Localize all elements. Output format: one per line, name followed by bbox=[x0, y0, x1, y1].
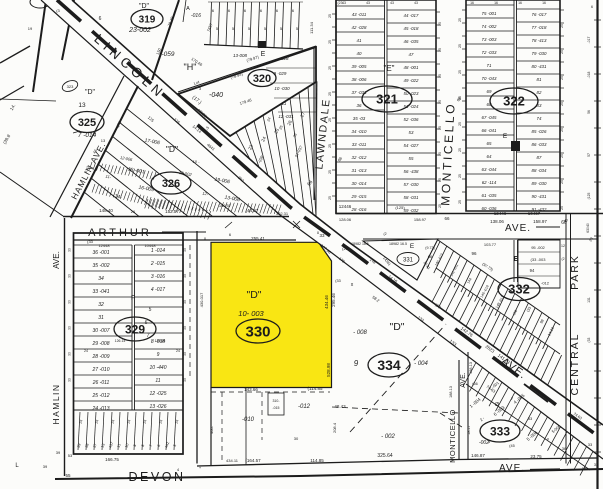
svg-text:64: 64 bbox=[487, 154, 492, 159]
svg-text:33: 33 bbox=[68, 378, 72, 382]
svg-text:30 -014: 30 -014 bbox=[352, 181, 367, 186]
svg-text:66: 66 bbox=[444, 216, 450, 221]
svg-text:9: 9 bbox=[354, 359, 359, 368]
svg-text:43: 43 bbox=[390, 1, 394, 5]
svg-text:434.46: 434.46 bbox=[324, 295, 329, 309]
svg-text:AVE.: AVE. bbox=[52, 251, 61, 269]
svg-text:2 -015: 2 -015 bbox=[150, 261, 165, 267]
svg-text:"E": "E" bbox=[383, 64, 394, 73]
svg-text:25: 25 bbox=[560, 128, 564, 132]
svg-text:85 -026: 85 -026 bbox=[532, 129, 547, 134]
svg-text:329: 329 bbox=[125, 322, 145, 336]
svg-text:F: F bbox=[131, 295, 135, 302]
svg-text:3 -016: 3 -016 bbox=[151, 274, 165, 280]
svg-text:6: 6 bbox=[145, 320, 148, 326]
svg-text:56 -438: 56 -438 bbox=[404, 169, 419, 174]
svg-text:94: 94 bbox=[530, 268, 535, 273]
svg-text:79 -030: 79 -030 bbox=[532, 51, 547, 56]
svg-text:39: 39 bbox=[56, 450, 61, 455]
svg-text:25: 25 bbox=[328, 14, 332, 18]
svg-text:138.06: 138.06 bbox=[490, 219, 504, 224]
svg-text:70 -043: 70 -043 bbox=[482, 76, 497, 81]
svg-text:-017: -017 bbox=[587, 36, 591, 43]
svg-text:38 -006: 38 -006 bbox=[352, 77, 367, 82]
svg-text:30: 30 bbox=[294, 436, 299, 441]
svg-text:A: A bbox=[186, 6, 190, 12]
svg-text:33: 33 bbox=[68, 248, 72, 252]
svg-text:27 -010: 27 -010 bbox=[92, 367, 110, 373]
svg-text:16: 16 bbox=[494, 1, 498, 5]
svg-text:13-008: 13-008 bbox=[233, 53, 248, 58]
svg-text:7 -014: 7 -014 bbox=[78, 132, 97, 139]
svg-text:323: 323 bbox=[67, 84, 74, 89]
svg-text:39 -005: 39 -005 bbox=[352, 64, 367, 69]
svg-text:72 -033: 72 -033 bbox=[482, 50, 497, 55]
svg-text:65: 65 bbox=[487, 141, 492, 146]
svg-text:61 -035: 61 -035 bbox=[482, 193, 497, 198]
svg-text:74: 74 bbox=[537, 116, 542, 121]
svg-text:1 -014: 1 -014 bbox=[151, 248, 165, 254]
svg-text:56: 56 bbox=[587, 110, 591, 114]
svg-text:25: 25 bbox=[458, 174, 462, 178]
svg-text:CENTRAL: CENTRAL bbox=[569, 332, 581, 395]
svg-text:25: 25 bbox=[560, 206, 564, 210]
svg-text:36: 36 bbox=[357, 103, 362, 108]
svg-text:331: 331 bbox=[403, 258, 414, 264]
svg-text:25: 25 bbox=[438, 100, 442, 104]
svg-text:10 -440: 10 -440 bbox=[150, 365, 167, 371]
svg-text:- 008: - 008 bbox=[353, 330, 367, 336]
svg-text:18982 16.5: 18982 16.5 bbox=[351, 242, 369, 246]
svg-text:33: 33 bbox=[68, 300, 72, 304]
svg-text:25: 25 bbox=[560, 24, 564, 28]
svg-text:295.46: 295.46 bbox=[331, 293, 336, 307]
svg-text:E: E bbox=[261, 51, 266, 58]
svg-text:44 -017: 44 -017 bbox=[404, 13, 419, 18]
svg-text:33: 33 bbox=[319, 233, 325, 238]
svg-text:334: 334 bbox=[377, 357, 401, 373]
svg-text:30: 30 bbox=[183, 248, 187, 252]
svg-text:158.97: 158.97 bbox=[414, 217, 427, 222]
svg-text:25: 25 bbox=[458, 18, 462, 22]
svg-text:43: 43 bbox=[366, 1, 370, 5]
svg-text:434.11: 434.11 bbox=[226, 458, 239, 463]
svg-text:78 -413: 78 -413 bbox=[532, 38, 547, 43]
svg-text:(125: (125 bbox=[587, 192, 591, 199]
svg-text:28 -009: 28 -009 bbox=[92, 354, 110, 360]
svg-text:11: 11 bbox=[282, 101, 287, 106]
svg-text:319: 319 bbox=[139, 15, 156, 26]
svg-text:24: 24 bbox=[84, 349, 88, 353]
svg-text:10- 003: 10- 003 bbox=[238, 309, 264, 318]
svg-text:45 -018: 45 -018 bbox=[404, 26, 419, 31]
svg-text:53: 53 bbox=[68, 453, 73, 458]
svg-text:40: 40 bbox=[357, 51, 362, 56]
svg-text:30: 30 bbox=[183, 300, 187, 304]
svg-text:33 -011: 33 -011 bbox=[352, 142, 367, 147]
svg-text:63 -044: 63 -044 bbox=[482, 167, 497, 172]
svg-text:75 -001: 75 -001 bbox=[482, 11, 497, 16]
svg-text:(2: (2 bbox=[383, 232, 386, 236]
svg-text:30: 30 bbox=[183, 352, 187, 356]
svg-text:"D": "D" bbox=[166, 144, 178, 154]
svg-text:62 -114: 62 -114 bbox=[482, 180, 497, 185]
svg-text:5: 5 bbox=[149, 307, 152, 313]
svg-text:-059: -059 bbox=[161, 51, 174, 58]
svg-text:88 -034: 88 -034 bbox=[532, 168, 547, 173]
svg-text:10 -030: 10 -030 bbox=[274, 86, 290, 91]
svg-text:29 -008: 29 -008 bbox=[92, 341, 110, 347]
svg-text:333: 333 bbox=[490, 424, 510, 438]
svg-text:12446: 12446 bbox=[339, 204, 352, 209]
svg-text:82: 82 bbox=[537, 90, 542, 95]
svg-text:(9.73): (9.73) bbox=[425, 246, 434, 250]
svg-text:16: 16 bbox=[470, 1, 474, 5]
svg-text:-040: -040 bbox=[209, 92, 223, 99]
svg-text:18.17: 18.17 bbox=[467, 425, 471, 435]
svg-text:162.57: 162.57 bbox=[219, 203, 232, 208]
svg-text:33: 33 bbox=[68, 326, 72, 330]
svg-text:25: 25 bbox=[560, 180, 564, 184]
svg-text:255.41: 255.41 bbox=[251, 236, 265, 241]
svg-text:"D": "D" bbox=[389, 321, 404, 333]
svg-text:67 -045: 67 -045 bbox=[482, 115, 497, 120]
svg-text:325.64: 325.64 bbox=[377, 453, 393, 459]
svg-text:96: 96 bbox=[471, 251, 477, 256]
svg-text:10448: 10448 bbox=[144, 243, 156, 248]
svg-text:30 -007: 30 -007 bbox=[93, 328, 110, 334]
svg-text:48 -001: 48 -001 bbox=[404, 65, 419, 70]
svg-text:73 -003: 73 -003 bbox=[482, 37, 497, 42]
svg-text:332: 332 bbox=[508, 282, 530, 297]
svg-text:86 -033: 86 -033 bbox=[532, 142, 547, 147]
svg-text:25: 25 bbox=[438, 204, 442, 208]
svg-text:25: 25 bbox=[438, 178, 442, 182]
svg-text:HAMLIN: HAMLIN bbox=[51, 383, 61, 424]
svg-text:46 -035: 46 -035 bbox=[404, 39, 419, 44]
svg-text:310-: 310- bbox=[272, 399, 280, 403]
svg-text:95 -002: 95 -002 bbox=[531, 245, 545, 250]
svg-text:(164.57: (164.57 bbox=[245, 458, 261, 463]
svg-text:"D": "D" bbox=[85, 89, 96, 96]
svg-text:25: 25 bbox=[458, 96, 462, 100]
svg-text:47: 47 bbox=[409, 52, 414, 57]
svg-text:31 -013: 31 -013 bbox=[352, 168, 367, 173]
svg-text:148.40: 148.40 bbox=[99, 208, 113, 213]
svg-text:10 -: 10 - bbox=[193, 159, 201, 164]
svg-text:320: 320 bbox=[253, 73, 271, 85]
svg-text:69: 69 bbox=[487, 89, 492, 94]
svg-text:528.98: 528.98 bbox=[326, 363, 331, 377]
svg-text:87: 87 bbox=[537, 155, 542, 160]
svg-text:9: 9 bbox=[157, 352, 160, 358]
svg-text:208.4: 208.4 bbox=[332, 422, 337, 433]
svg-text:325: 325 bbox=[78, 117, 96, 129]
svg-text:12446: 12446 bbox=[494, 211, 507, 216]
svg-text:54 -027: 54 -027 bbox=[404, 143, 419, 148]
svg-text:25: 25 bbox=[458, 200, 462, 204]
svg-text:114.85: 114.85 bbox=[310, 458, 324, 463]
svg-text:25: 25 bbox=[438, 74, 442, 78]
svg-text:25: 25 bbox=[328, 196, 332, 200]
svg-text:126.16: 126.16 bbox=[155, 339, 166, 343]
svg-text:76 -017: 76 -017 bbox=[532, 12, 547, 17]
svg-text:"H": "H" bbox=[184, 62, 197, 72]
svg-text:188.13: 188.13 bbox=[449, 386, 453, 398]
svg-text:- 002: - 002 bbox=[381, 434, 395, 440]
svg-text:(33: (33 bbox=[335, 279, 341, 283]
svg-text:35 -03: 35 -03 bbox=[353, 116, 366, 121]
svg-text:23.75: 23.75 bbox=[530, 454, 542, 459]
svg-text:39: 39 bbox=[43, 464, 48, 469]
svg-text:4 -017: 4 -017 bbox=[151, 287, 165, 293]
svg-text:35 -002: 35 -002 bbox=[93, 263, 110, 269]
svg-text:33 -041: 33 -041 bbox=[93, 289, 110, 295]
svg-text:"D": "D" bbox=[246, 289, 261, 301]
svg-text:(2: (2 bbox=[561, 257, 564, 261]
svg-text:330: 330 bbox=[245, 323, 270, 340]
svg-text:25: 25 bbox=[458, 122, 462, 126]
svg-text:57: 57 bbox=[587, 153, 591, 157]
svg-text:32 -012: 32 -012 bbox=[352, 155, 367, 160]
svg-text:26 -011: 26 -011 bbox=[92, 380, 110, 386]
svg-text:6: 6 bbox=[591, 5, 593, 9]
svg-text:53: 53 bbox=[409, 130, 414, 135]
svg-text:E: E bbox=[513, 254, 518, 263]
svg-text:42 -028: 42 -028 bbox=[352, 25, 367, 30]
svg-text:25: 25 bbox=[560, 76, 564, 80]
svg-text:25: 25 bbox=[328, 92, 332, 96]
svg-text:33: 33 bbox=[528, 416, 533, 421]
svg-text:25: 25 bbox=[328, 118, 332, 122]
svg-text:12448: 12448 bbox=[98, 243, 110, 248]
svg-text:33: 33 bbox=[68, 274, 72, 278]
svg-text:(125): (125) bbox=[395, 205, 405, 210]
svg-text:28 -016: 28 -016 bbox=[351, 207, 367, 212]
svg-text:25 -012: 25 -012 bbox=[92, 393, 110, 399]
svg-text:29 -015: 29 -015 bbox=[351, 194, 367, 199]
svg-text:302.31: 302.31 bbox=[276, 211, 289, 216]
svg-text:25: 25 bbox=[560, 102, 564, 106]
svg-text:166.75: 166.75 bbox=[105, 457, 119, 462]
svg-text:33: 33 bbox=[594, 463, 598, 467]
svg-text:103.77: 103.77 bbox=[484, 242, 497, 247]
svg-text:47: 47 bbox=[564, 219, 568, 223]
svg-text:AVE.: AVE. bbox=[505, 223, 531, 234]
svg-text:55: 55 bbox=[65, 473, 71, 478]
svg-text:PARK: PARK bbox=[569, 254, 581, 290]
svg-text:-028: -028 bbox=[279, 56, 289, 61]
svg-text:MONTICELLO: MONTICELLO bbox=[448, 409, 457, 463]
svg-text:- 004: - 004 bbox=[414, 361, 428, 367]
svg-text:89 -030: 89 -030 bbox=[532, 181, 547, 186]
svg-text:30: 30 bbox=[183, 378, 187, 382]
svg-text:E: E bbox=[503, 133, 508, 140]
svg-text:48.43: 48.43 bbox=[334, 404, 346, 409]
svg-text:55: 55 bbox=[409, 156, 414, 161]
svg-text:90 -431: 90 -431 bbox=[532, 194, 547, 199]
svg-text:43: 43 bbox=[342, 1, 346, 5]
svg-text:43 -011: 43 -011 bbox=[352, 12, 367, 17]
svg-text:80 -431: 80 -431 bbox=[532, 64, 547, 69]
svg-text:25: 25 bbox=[438, 152, 442, 156]
svg-text:25: 25 bbox=[458, 148, 462, 152]
svg-text:-010: -010 bbox=[242, 417, 255, 423]
svg-text:-015: -015 bbox=[272, 406, 279, 410]
svg-text:326: 326 bbox=[162, 178, 180, 190]
svg-text:58 -031: 58 -031 bbox=[404, 195, 419, 200]
svg-text:AVE.: AVE. bbox=[499, 463, 525, 474]
svg-text:25: 25 bbox=[328, 170, 332, 174]
svg-text:E: E bbox=[410, 243, 415, 250]
svg-text:13: 13 bbox=[78, 102, 86, 109]
svg-text:25: 25 bbox=[560, 154, 564, 158]
svg-text:26: 26 bbox=[131, 209, 136, 214]
svg-text:128.06: 128.06 bbox=[339, 217, 352, 222]
svg-text:41: 41 bbox=[357, 38, 362, 43]
svg-text:32: 32 bbox=[98, 302, 104, 308]
svg-text:59 -032: 59 -032 bbox=[404, 208, 419, 213]
svg-text:49 -022: 49 -022 bbox=[404, 78, 419, 83]
svg-text:111.34: 111.34 bbox=[309, 21, 314, 33]
svg-text:131: 131 bbox=[587, 297, 591, 303]
svg-text:16: 16 bbox=[542, 1, 546, 5]
svg-text:13: 13 bbox=[101, 138, 106, 143]
svg-text:36: 36 bbox=[562, 446, 567, 451]
svg-text:(66: (66 bbox=[472, 382, 478, 386]
svg-text:DEVON: DEVON bbox=[129, 470, 186, 484]
svg-text:66: 66 bbox=[428, 254, 433, 259]
svg-text:24: 24 bbox=[176, 349, 180, 353]
svg-text:34 -010: 34 -010 bbox=[352, 129, 367, 134]
svg-text:25: 25 bbox=[328, 144, 332, 148]
svg-text:158.97: 158.97 bbox=[533, 219, 547, 224]
svg-text:126.14: 126.14 bbox=[115, 339, 126, 343]
svg-text:25: 25 bbox=[458, 44, 462, 48]
svg-text:25: 25 bbox=[328, 66, 332, 70]
svg-text:15: 15 bbox=[582, 466, 587, 471]
svg-text:Ø: Ø bbox=[495, 402, 499, 408]
svg-text:(114.85: (114.85 bbox=[308, 386, 323, 391]
svg-text:146.87: 146.87 bbox=[471, 453, 485, 458]
svg-text:322: 322 bbox=[503, 94, 525, 109]
svg-text:31: 31 bbox=[98, 315, 104, 321]
svg-text:63040: 63040 bbox=[586, 223, 590, 233]
svg-text:(33: (33 bbox=[87, 239, 94, 244]
svg-text:33: 33 bbox=[68, 352, 72, 356]
svg-text:25: 25 bbox=[438, 126, 442, 130]
svg-text:33: 33 bbox=[588, 442, 593, 447]
svg-text:(33 -003: (33 -003 bbox=[531, 257, 547, 262]
svg-text:25: 25 bbox=[458, 70, 462, 74]
svg-text:x: x bbox=[547, 436, 549, 441]
svg-text:23-002: 23-002 bbox=[128, 27, 151, 34]
svg-text:34: 34 bbox=[98, 276, 104, 282]
svg-text:-012: -012 bbox=[298, 404, 311, 410]
svg-text:25: 25 bbox=[560, 50, 564, 54]
svg-text:57 -030: 57 -030 bbox=[404, 182, 419, 187]
svg-text:25: 25 bbox=[328, 40, 332, 44]
svg-text:43: 43 bbox=[414, 1, 418, 5]
svg-text:400-: 400- bbox=[209, 425, 214, 434]
svg-text:152.57: 152.57 bbox=[165, 209, 179, 214]
svg-text:10467: 10467 bbox=[528, 211, 541, 216]
svg-text:-016: -016 bbox=[191, 13, 201, 19]
svg-text:30: 30 bbox=[183, 274, 187, 278]
svg-text:11: 11 bbox=[155, 378, 160, 384]
svg-text:-018: -018 bbox=[587, 71, 591, 78]
svg-text:66 -041: 66 -041 bbox=[482, 128, 497, 133]
svg-text:18982 16.5: 18982 16.5 bbox=[389, 242, 407, 246]
svg-text:-012: -012 bbox=[541, 281, 550, 286]
svg-text:(33: (33 bbox=[587, 337, 591, 342]
svg-text:24 -013: 24 -013 bbox=[92, 406, 110, 412]
svg-text:71: 71 bbox=[487, 63, 492, 68]
svg-text:(44.97: (44.97 bbox=[246, 208, 259, 213]
svg-text:36 -001: 36 -001 bbox=[93, 250, 110, 256]
svg-text:430-017: 430-017 bbox=[199, 292, 204, 307]
svg-text:19: 19 bbox=[28, 26, 33, 31]
svg-text:25: 25 bbox=[438, 22, 442, 26]
svg-text:12 -025: 12 -025 bbox=[150, 391, 167, 397]
svg-text:321: 321 bbox=[376, 92, 398, 107]
svg-text:25: 25 bbox=[438, 48, 442, 52]
svg-text:30: 30 bbox=[183, 326, 187, 330]
svg-text:81: 81 bbox=[537, 77, 542, 82]
svg-text:52 -036: 52 -036 bbox=[404, 117, 419, 122]
svg-text:12: 12 bbox=[561, 244, 565, 248]
svg-text:16: 16 bbox=[518, 1, 522, 5]
svg-text:(29: (29 bbox=[342, 246, 349, 251]
svg-text:6: 6 bbox=[99, 16, 102, 22]
svg-text:77 -018: 77 -018 bbox=[532, 25, 547, 30]
svg-text:(45: (45 bbox=[509, 444, 515, 448]
svg-text:13 -026: 13 -026 bbox=[150, 404, 167, 410]
svg-text:74 -002: 74 -002 bbox=[482, 24, 497, 29]
